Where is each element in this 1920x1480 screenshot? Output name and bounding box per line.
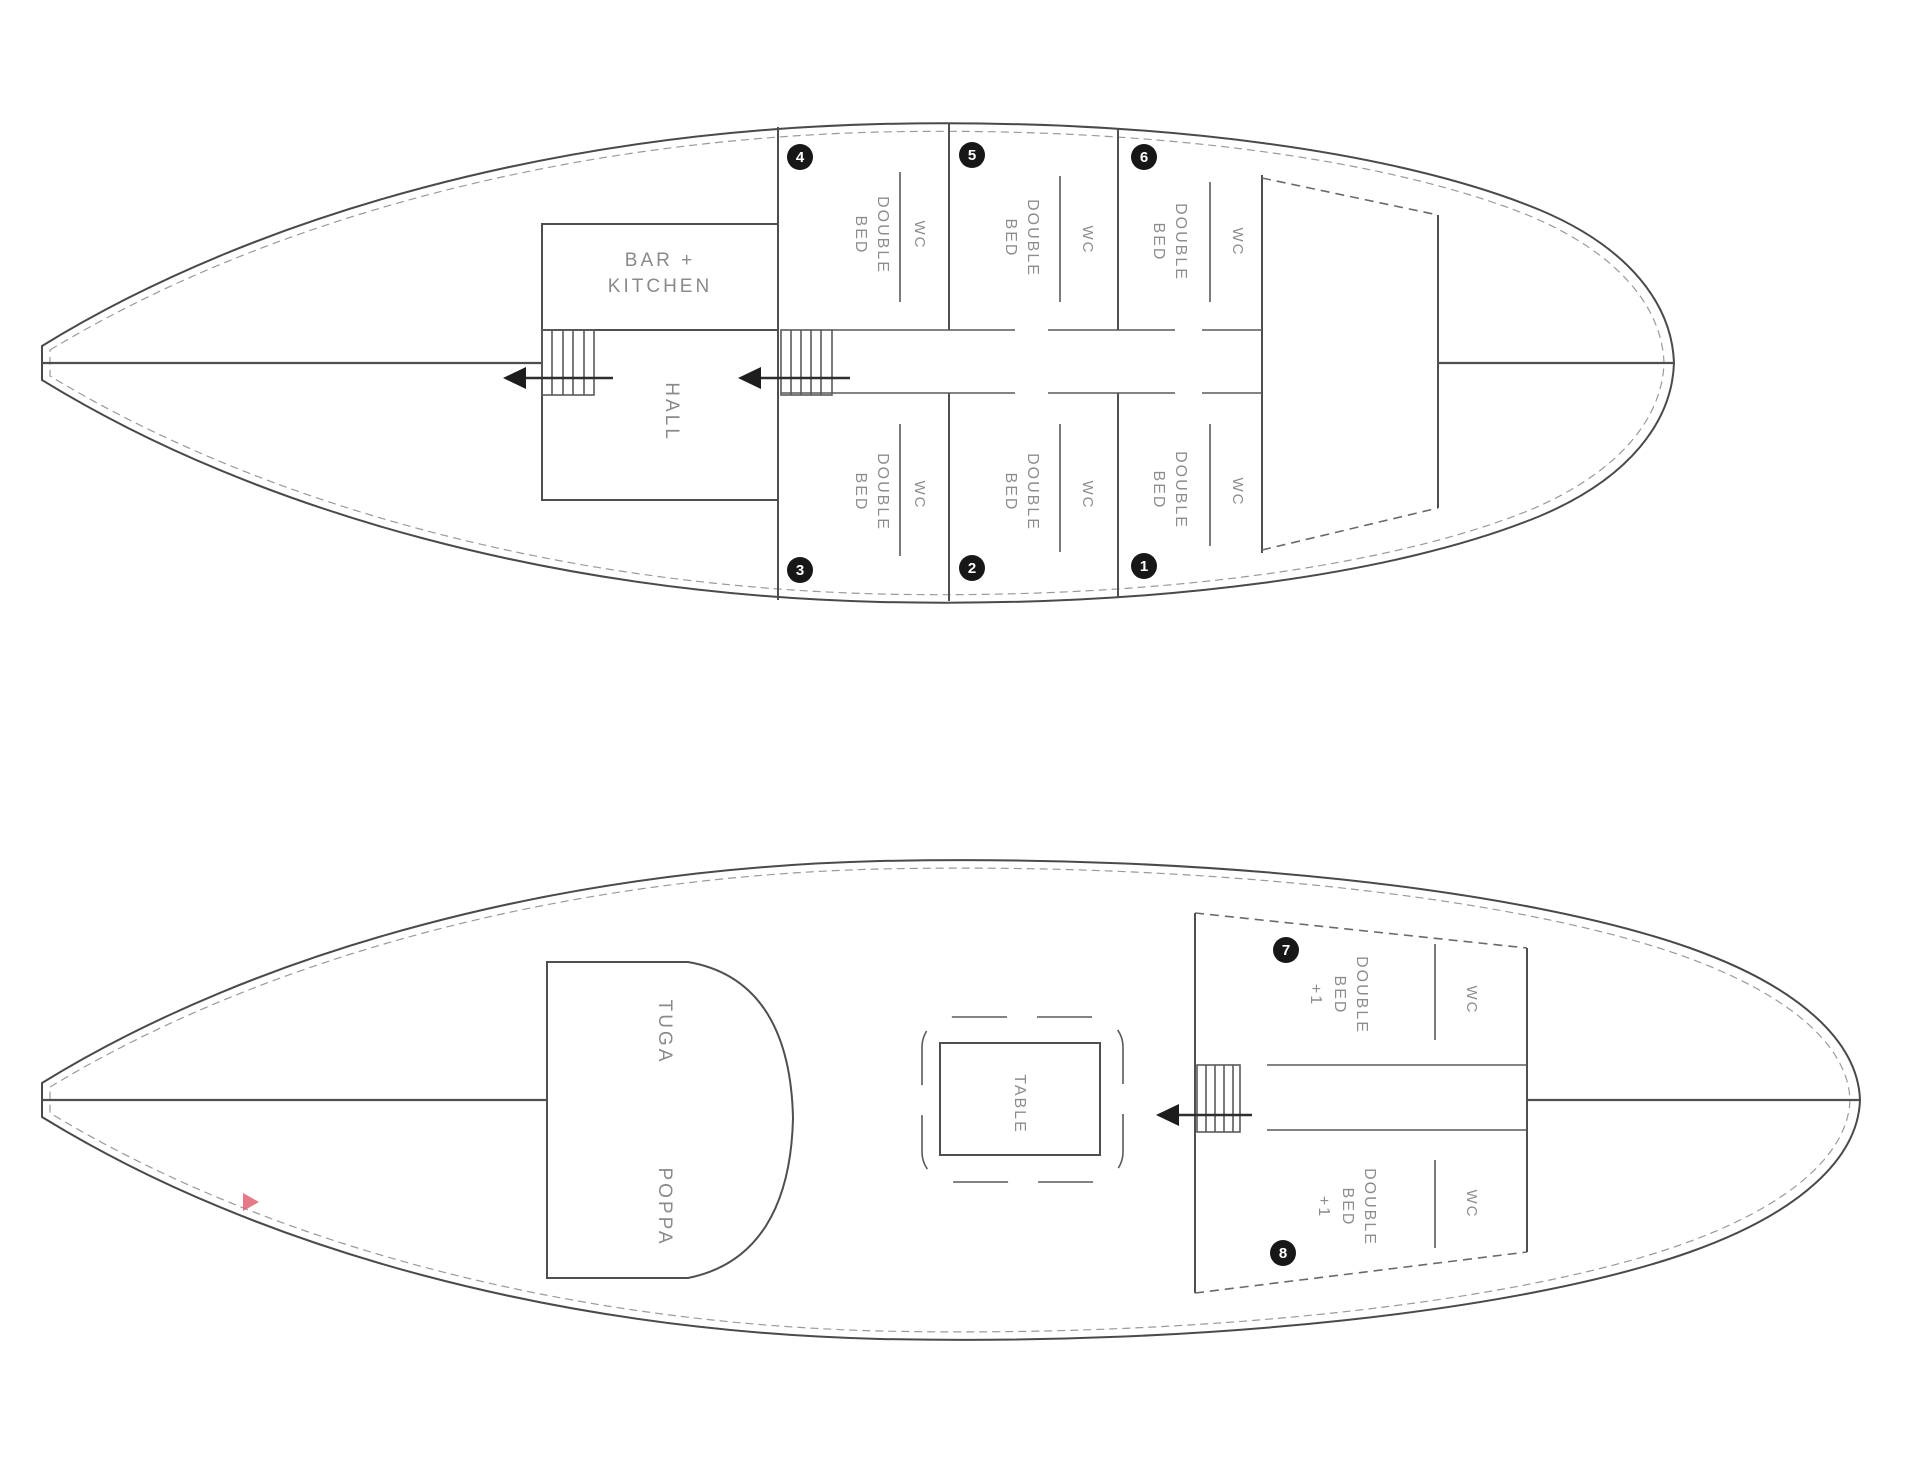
deck-plan-page: BAR + KITCHEN HALL <box>0 0 1920 1475</box>
upper-left-stairs <box>542 330 594 395</box>
cabin-2-wc-label: WC <box>1079 481 1096 510</box>
svg-text:DOUBLE: DOUBLE <box>1024 199 1041 277</box>
svg-text:+1: +1 <box>1307 984 1324 1006</box>
cabin-6: 6 DOUBLE BED WC <box>1131 144 1246 281</box>
upper-cabin-walls <box>778 124 1262 601</box>
main-stairs <box>1197 1065 1240 1132</box>
svg-text:DOUBLE: DOUBLE <box>1361 1168 1378 1246</box>
cabin-8-wc-label: WC <box>1463 1190 1480 1219</box>
cabin-5-wc-label: WC <box>1079 226 1096 255</box>
bar-kitchen-label-line1: BAR + <box>625 250 695 271</box>
bar-kitchen-label-line2: KITCHEN <box>608 276 712 297</box>
upper-deck: BAR + KITCHEN HALL <box>42 123 1674 602</box>
cabin-5: 5 DOUBLE BED WC <box>959 142 1096 277</box>
deckhouse: TUGA POPPA <box>547 962 793 1278</box>
svg-text:BED: BED <box>852 473 869 512</box>
cabin-6-number: 6 <box>1140 149 1148 166</box>
upper-bow-structure <box>1262 178 1438 550</box>
svg-text:BED: BED <box>1002 219 1019 258</box>
svg-text:DOUBLE: DOUBLE <box>1172 203 1189 281</box>
poppa-label: POPPA <box>654 1167 675 1246</box>
cabin-8-number: 8 <box>1279 1245 1287 1262</box>
svg-text:DOUBLE: DOUBLE <box>1172 451 1189 529</box>
upper-right-exit-arrow <box>738 367 850 389</box>
svg-text:BED: BED <box>1002 473 1019 512</box>
cabin-2-number: 2 <box>968 560 976 577</box>
svg-text:DOUBLE: DOUBLE <box>1024 453 1041 531</box>
position-marker-triangle <box>243 1193 259 1211</box>
cabin-6-wc-label: WC <box>1229 228 1246 257</box>
svg-text:BED: BED <box>1331 976 1348 1015</box>
upper-right-stairs <box>781 330 832 395</box>
cabin-4-wc-label: WC <box>911 221 928 250</box>
main-deck: TUGA POPPA TABLE <box>42 860 1860 1340</box>
cabin-8: 8 DOUBLE BED +1 WC <box>1270 1168 1480 1266</box>
cabin-7-number: 7 <box>1282 942 1290 959</box>
svg-text:BED: BED <box>1150 471 1167 510</box>
svg-text:DOUBLE: DOUBLE <box>874 196 891 274</box>
cabin-7: 7 DOUBLE BED +1 WC <box>1273 937 1480 1034</box>
cabin-1-number: 1 <box>1140 558 1148 575</box>
cabin-1: 1 DOUBLE BED WC <box>1131 451 1246 579</box>
svg-text:DOUBLE: DOUBLE <box>1353 956 1370 1034</box>
deck-plan-drawing: BAR + KITCHEN HALL <box>0 0 1920 1475</box>
svg-text:+1: +1 <box>1315 1196 1332 1218</box>
main-exit-arrow <box>1156 1104 1252 1126</box>
cabin-4-number: 4 <box>796 149 805 166</box>
table-area: TABLE <box>922 1017 1123 1182</box>
cabin-7-wc-label: WC <box>1463 986 1480 1015</box>
cabin-2: 2 DOUBLE BED WC <box>959 453 1096 581</box>
cabin-3: 3 DOUBLE BED WC <box>787 453 928 583</box>
hall-label: HALL <box>661 382 682 442</box>
svg-text:BED: BED <box>852 216 869 255</box>
cabin-1-wc-label: WC <box>1229 478 1246 507</box>
svg-text:BED: BED <box>1150 223 1167 262</box>
cabin-3-number: 3 <box>796 562 804 579</box>
table-label: TABLE <box>1011 1074 1028 1134</box>
svg-text:BED: BED <box>1339 1188 1356 1227</box>
upper-left-exit-arrow <box>503 367 613 389</box>
cabin-5-number: 5 <box>968 147 976 164</box>
cabin-4: 4 DOUBLE BED WC <box>787 144 928 274</box>
svg-text:DOUBLE: DOUBLE <box>874 453 891 531</box>
tuga-label: TUGA <box>654 1000 675 1065</box>
cabin-3-wc-label: WC <box>911 481 928 510</box>
